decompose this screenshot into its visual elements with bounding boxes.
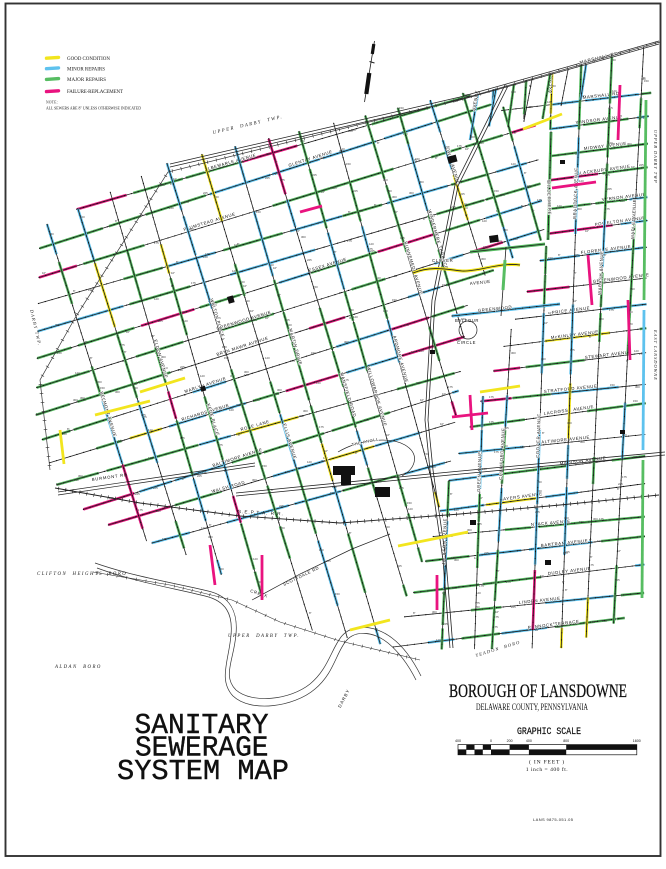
svg-text:225: 225 [633,455,638,459]
svg-text:10": 10" [296,229,300,233]
svg-text:120: 120 [183,319,188,323]
svg-text:120: 120 [557,204,562,208]
svg-text:300: 300 [454,558,459,562]
svg-text:400: 400 [526,739,532,743]
svg-text:225: 225 [274,392,279,396]
svg-text:175: 175 [368,247,373,251]
svg-text:UPPER DARBY TWP.: UPPER DARBY TWP. [228,634,300,639]
svg-text:8": 8" [415,160,418,164]
svg-text:175: 175 [319,425,324,429]
svg-text:120: 120 [245,299,250,303]
svg-text:8": 8" [124,350,127,354]
svg-text:120: 120 [608,141,613,145]
svg-text:175: 175 [506,580,511,584]
svg-text:300: 300 [431,465,436,469]
svg-text:300: 300 [97,380,102,384]
svg-text:8": 8" [224,469,227,473]
svg-text:300: 300 [115,390,120,394]
svg-text:120: 120 [154,297,159,301]
svg-text:150: 150 [541,357,546,361]
svg-text:150: 150 [330,491,335,495]
svg-text:120: 120 [340,147,345,151]
svg-text:175: 175 [622,475,627,479]
svg-text:10": 10" [540,574,544,578]
svg-text:300: 300 [208,535,213,539]
svg-text:300: 300 [301,235,306,239]
svg-text:150: 150 [610,383,615,387]
svg-text:120: 120 [511,162,516,166]
svg-text:8": 8" [377,141,380,145]
svg-text:8": 8" [617,487,620,491]
svg-text:150: 150 [214,195,219,199]
svg-text:150: 150 [537,480,542,484]
svg-text:300: 300 [80,396,85,400]
svg-text:10": 10" [273,266,277,270]
svg-text:175: 175 [285,470,290,474]
svg-text:150: 150 [62,432,67,436]
svg-text:120: 120 [222,345,227,349]
svg-text:800: 800 [563,739,569,743]
svg-text:120: 120 [316,381,321,385]
svg-text:175: 175 [493,625,498,629]
svg-text:225: 225 [180,365,185,369]
svg-text:120: 120 [436,638,441,642]
svg-text:120: 120 [265,356,270,360]
svg-text:120: 120 [383,309,388,313]
svg-text:150: 150 [407,501,412,505]
svg-text:175: 175 [599,517,604,521]
svg-text:8": 8" [465,213,468,217]
svg-text:1 inch = 400 ft.: 1 inch = 400 ft. [526,766,568,773]
svg-text:225: 225 [535,510,540,514]
svg-text:120: 120 [36,412,41,416]
svg-text:10": 10" [265,316,269,320]
svg-text:175: 175 [494,615,499,619]
svg-text:8": 8" [355,451,358,455]
svg-text:300: 300 [351,128,356,132]
svg-text:150: 150 [494,189,499,193]
svg-text:120: 120 [287,323,292,327]
svg-text:200: 200 [507,739,513,743]
svg-text:175: 175 [184,200,189,204]
svg-text:120: 120 [253,557,258,561]
svg-text:150: 150 [313,285,318,289]
svg-text:10": 10" [151,334,155,338]
svg-text:8": 8" [529,84,532,88]
svg-text:10": 10" [535,628,539,632]
svg-text:ALL SEWERS ARE 8" UNLESS OTHER: ALL SEWERS ARE 8" UNLESS OTHERWISE INDIC… [46,107,141,111]
svg-text:175: 175 [154,241,159,245]
svg-text:225: 225 [605,173,610,177]
svg-text:175: 175 [148,456,153,460]
svg-text:GOOD CONDITION: GOOD CONDITION [67,57,110,62]
svg-text:NOTE:: NOTE: [46,101,58,105]
svg-text:8": 8" [309,611,312,615]
svg-text:8": 8" [167,266,170,270]
svg-text:175: 175 [290,359,295,363]
svg-text:150: 150 [442,283,447,287]
svg-text:10": 10" [394,274,398,278]
svg-text:150: 150 [419,349,424,353]
svg-text:120: 120 [476,591,481,595]
svg-text:175: 175 [500,193,505,197]
svg-text:150: 150 [579,520,584,524]
svg-text:10": 10" [171,271,175,275]
svg-text:10": 10" [440,422,444,426]
svg-text:DELAWARE COUNTY, PENNSYLVANIA: DELAWARE COUNTY, PENNSYLVANIA [476,703,588,713]
svg-text:120: 120 [80,215,85,219]
svg-text:225: 225 [307,258,312,262]
svg-text:10": 10" [277,293,281,297]
svg-text:8": 8" [275,160,278,164]
svg-text:300: 300 [299,414,304,418]
svg-text:8": 8" [497,569,500,573]
svg-text:300: 300 [432,610,437,614]
svg-text:8": 8" [514,131,517,135]
svg-text:120: 120 [385,525,390,529]
svg-text:120: 120 [169,206,174,210]
svg-text:120: 120 [75,371,80,375]
svg-text:120: 120 [56,482,61,486]
svg-text:8": 8" [589,538,592,542]
svg-text:10": 10" [544,321,548,325]
svg-text:175: 175 [494,450,499,454]
svg-text:150: 150 [630,287,635,291]
svg-text:CLOVER: CLOVER [432,258,453,263]
svg-text:175: 175 [162,537,167,541]
svg-text:225: 225 [615,578,620,582]
svg-text:150: 150 [633,399,638,403]
svg-text:150: 150 [332,485,337,489]
svg-text:8": 8" [171,284,174,288]
svg-text:10": 10" [617,549,621,553]
svg-text:10": 10" [420,398,424,402]
svg-text:225: 225 [397,564,402,568]
svg-text:150: 150 [364,418,369,422]
svg-text:( IN FEET ): ( IN FEET ) [529,759,565,766]
svg-text:225: 225 [182,310,187,314]
svg-text:300: 300 [303,409,308,413]
svg-text:150: 150 [346,162,351,166]
svg-text:8": 8" [182,477,185,481]
svg-text:175: 175 [589,563,594,567]
svg-text:150: 150 [335,592,340,596]
svg-text:BALFOUR: BALFOUR [455,318,479,323]
svg-text:8": 8" [532,209,535,213]
svg-text:120: 120 [57,351,62,355]
svg-text:150: 150 [392,298,397,302]
svg-text:10": 10" [394,210,398,214]
svg-text:175: 175 [240,402,245,406]
svg-text:300: 300 [627,142,632,146]
svg-text:10": 10" [243,284,247,288]
svg-text:120: 120 [369,242,374,246]
svg-text:150: 150 [262,464,267,468]
svg-text:8": 8" [85,340,88,344]
svg-text:300: 300 [344,340,349,344]
svg-text:300: 300 [419,180,424,184]
svg-text:300: 300 [73,398,78,402]
svg-text:120: 120 [307,460,312,464]
svg-text:225: 225 [639,163,644,167]
svg-text:ALDAN BORO: ALDAN BORO [54,665,102,670]
svg-text:SYSTEM MAP: SYSTEM MAP [117,755,289,788]
svg-text:400: 400 [455,739,461,743]
svg-text:300: 300 [49,232,54,236]
svg-text:225: 225 [607,187,612,191]
svg-text:300: 300 [470,135,475,139]
svg-text:300: 300 [252,478,257,482]
svg-text:225: 225 [565,550,570,554]
svg-text:10": 10" [126,330,130,334]
svg-text:175: 175 [609,308,614,312]
svg-text:120: 120 [482,219,487,223]
svg-text:150: 150 [511,90,516,94]
svg-text:300: 300 [564,516,569,520]
svg-text:150: 150 [74,478,79,482]
svg-text:225: 225 [443,622,448,626]
svg-text:8": 8" [436,154,439,158]
svg-text:150: 150 [319,548,324,552]
svg-text:8": 8" [349,531,352,535]
svg-text:120: 120 [383,178,388,182]
svg-text:120: 120 [201,526,206,530]
svg-text:300: 300 [409,191,414,195]
svg-text:8": 8" [450,492,453,496]
svg-text:225: 225 [528,105,533,109]
svg-text:8": 8" [542,431,545,435]
svg-text:10": 10" [573,299,577,303]
svg-text:10": 10" [585,229,589,233]
svg-text:8": 8" [115,219,118,223]
svg-text:175: 175 [347,239,352,243]
svg-text:225: 225 [511,605,516,609]
svg-text:175: 175 [141,413,146,417]
svg-text:10": 10" [495,610,499,614]
svg-text:225: 225 [460,192,465,196]
svg-text:FAILURE-REPLACEMENT: FAILURE-REPLACEMENT [67,90,123,95]
svg-text:10": 10" [411,350,415,354]
svg-text:300: 300 [567,421,572,425]
svg-text:120: 120 [612,89,617,93]
svg-text:8": 8" [334,250,337,254]
svg-text:150: 150 [256,210,261,214]
svg-text:175: 175 [180,436,185,440]
svg-text:300: 300 [266,152,271,156]
svg-text:300: 300 [239,160,244,164]
svg-text:10": 10" [250,309,254,313]
svg-text:10": 10" [254,318,258,322]
svg-text:300: 300 [133,386,138,390]
svg-text:175: 175 [457,144,462,148]
svg-text:150: 150 [296,466,301,470]
svg-text:150: 150 [349,308,354,312]
svg-text:120: 120 [200,374,205,378]
svg-text:120: 120 [634,349,639,353]
svg-text:120: 120 [513,237,518,241]
svg-text:300: 300 [452,586,457,590]
svg-text:120: 120 [240,280,245,284]
svg-text:10": 10" [465,147,469,151]
svg-text:150: 150 [311,351,316,355]
svg-text:8": 8" [67,427,70,431]
svg-text:150: 150 [399,106,404,110]
svg-text:225: 225 [526,185,531,189]
svg-text:8": 8" [90,356,93,360]
svg-text:8": 8" [413,611,416,615]
svg-text:8": 8" [562,580,565,584]
svg-text:120: 120 [353,315,358,319]
svg-text:10": 10" [442,392,446,396]
svg-text:10": 10" [597,539,601,543]
svg-text:300: 300 [577,207,582,211]
svg-text:300: 300 [55,323,60,327]
svg-text:10": 10" [321,190,325,194]
svg-text:120: 120 [454,508,459,512]
svg-text:175: 175 [400,236,405,240]
svg-text:175: 175 [218,443,223,447]
svg-text:8": 8" [574,271,577,275]
svg-text:8": 8" [176,260,179,264]
svg-text:175: 175 [605,207,610,211]
svg-text:175: 175 [404,323,409,327]
svg-text:300: 300 [593,517,598,521]
svg-text:175: 175 [537,198,542,202]
svg-text:175: 175 [475,601,480,605]
svg-text:10": 10" [479,496,483,500]
svg-text:BOROUGH OF LANSDOWNE: BOROUGH OF LANSDOWNE [449,681,627,702]
svg-text:150: 150 [387,189,392,193]
svg-text:150: 150 [548,256,553,260]
svg-text:10": 10" [386,433,390,437]
svg-text:225: 225 [285,318,290,322]
svg-text:120: 120 [408,507,413,511]
svg-text:120: 120 [203,255,208,259]
svg-text:120: 120 [148,428,153,432]
svg-text:8": 8" [348,210,351,214]
svg-text:225: 225 [153,486,158,490]
svg-text:LANS 9875-051.05: LANS 9875-051.05 [533,817,574,822]
svg-text:8": 8" [558,253,561,257]
svg-text:225: 225 [608,106,613,110]
svg-text:225: 225 [279,504,284,508]
svg-text:175: 175 [489,395,494,399]
svg-text:8": 8" [339,291,342,295]
svg-text:GRAPHIC SCALE: GRAPHIC SCALE [517,726,581,738]
svg-text:10": 10" [592,620,596,624]
svg-text:300: 300 [416,381,421,385]
svg-text:8": 8" [209,523,212,527]
svg-text:8": 8" [626,359,629,363]
svg-text:0: 0 [490,739,492,743]
svg-text:10": 10" [234,243,238,247]
svg-text:120: 120 [602,619,607,623]
svg-text:8": 8" [500,502,503,506]
svg-text:150: 150 [537,489,542,493]
svg-text:8": 8" [423,217,426,221]
svg-text:1600: 1600 [633,739,641,743]
svg-text:225: 225 [158,319,163,323]
svg-text:225: 225 [353,189,358,193]
svg-text:150: 150 [503,228,508,232]
svg-text:175: 175 [489,420,494,424]
svg-text:CLIFTON HEIGHTS BORO: CLIFTON HEIGHTS BORO [37,572,127,577]
svg-text:300: 300 [635,385,640,389]
svg-text:300: 300 [78,474,83,478]
svg-text:MINOR REPAIRS: MINOR REPAIRS [67,67,105,72]
svg-text:225: 225 [203,191,208,195]
svg-text:8": 8" [271,488,274,492]
svg-text:120: 120 [229,408,234,412]
svg-text:300: 300 [156,509,161,513]
svg-text:225: 225 [135,492,140,496]
svg-text:175: 175 [448,385,453,389]
svg-text:120: 120 [641,77,646,81]
svg-text:120: 120 [520,445,525,449]
svg-text:175: 175 [118,439,123,443]
svg-text:225: 225 [484,551,489,555]
svg-text:150: 150 [100,386,105,390]
svg-text:EAST LANSDOWNE: EAST LANSDOWNE [653,329,658,381]
svg-text:300: 300 [132,382,137,386]
svg-text:300: 300 [219,567,224,571]
svg-text:10": 10" [559,126,563,130]
svg-text:300: 300 [189,227,194,231]
svg-text:175: 175 [479,584,484,588]
svg-text:8": 8" [589,335,592,339]
svg-text:175: 175 [244,373,249,377]
svg-text:175: 175 [191,281,196,285]
svg-text:175: 175 [138,508,143,512]
svg-text:300: 300 [580,440,585,444]
svg-text:8": 8" [565,588,568,592]
svg-text:10": 10" [631,165,635,169]
svg-text:10": 10" [42,271,46,275]
svg-text:8": 8" [402,386,405,390]
svg-text:120: 120 [599,317,604,321]
svg-text:150: 150 [475,605,480,609]
svg-text:8": 8" [374,203,377,207]
svg-text:CIRCLE: CIRCLE [457,340,476,345]
svg-text:225: 225 [265,176,270,180]
svg-text:MAJOR REPAIRS: MAJOR REPAIRS [67,78,106,83]
svg-text:300: 300 [511,351,516,355]
svg-text:175: 175 [120,343,125,347]
svg-text:300: 300 [392,195,397,199]
svg-text:175: 175 [477,522,482,526]
svg-text:175: 175 [570,348,575,352]
svg-text:8": 8" [238,433,241,437]
svg-text:150: 150 [611,58,616,62]
svg-text:175: 175 [280,178,285,182]
svg-text:120: 120 [547,100,552,104]
svg-text:300: 300 [481,257,486,261]
svg-text:8": 8" [524,171,527,175]
svg-text:150: 150 [280,526,285,530]
svg-text:UPPER DARBY TWP: UPPER DARBY TWP [653,130,658,184]
svg-text:150: 150 [483,245,488,249]
svg-text:225: 225 [399,486,404,490]
svg-text:300: 300 [332,186,337,190]
svg-text:10": 10" [324,449,328,453]
svg-text:120: 120 [255,398,260,402]
svg-text:8": 8" [590,555,593,559]
svg-text:8": 8" [521,204,524,208]
svg-text:8": 8" [604,253,607,257]
svg-text:8": 8" [73,289,76,293]
svg-text:8": 8" [358,214,361,218]
svg-text:225: 225 [312,173,317,177]
